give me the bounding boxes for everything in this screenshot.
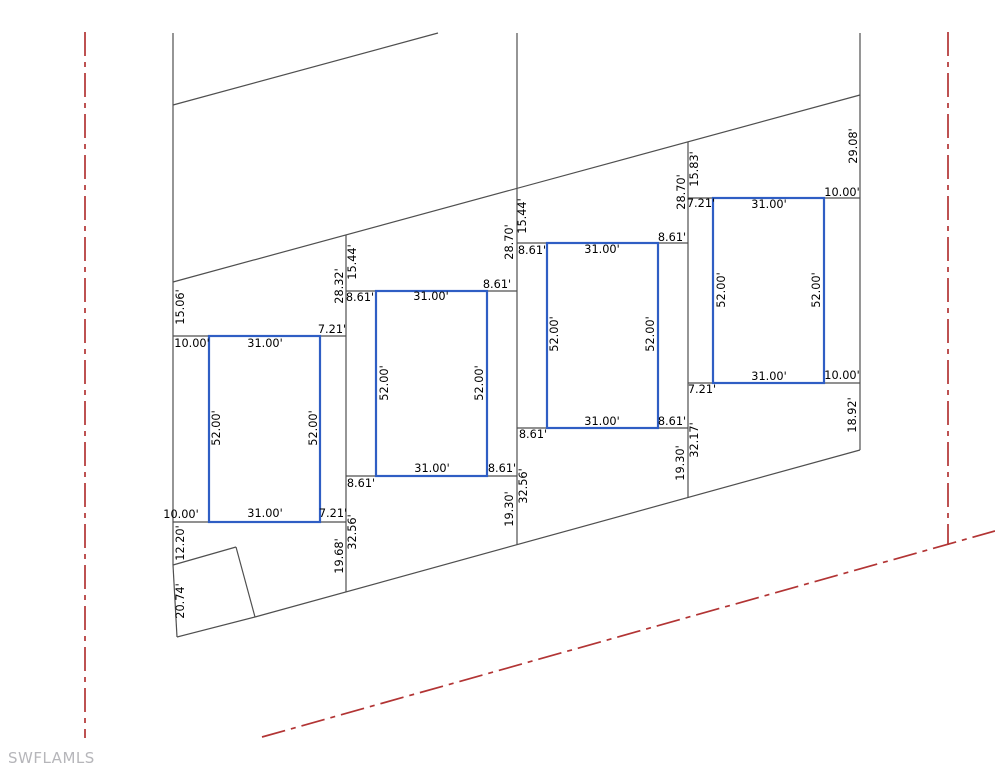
dimension-label: 10.00' [824,186,859,199]
dimension-label: 8.61' [346,291,374,304]
dimension-label: 52.00' [810,272,823,307]
dimension-label: 19.30' [503,491,516,526]
building-footprint-lot2 [376,291,487,476]
dimension-label: 8.61' [347,477,375,490]
dimension-label: 28.70' [503,224,516,259]
dimension-label: 52.00' [644,316,657,351]
dimension-label: 52.00' [715,272,728,307]
dimension-label: 10.00' [174,337,209,350]
dimension-label: 15.83' [688,151,701,186]
watermark: SWFLAMLS [8,749,95,767]
dimension-label: 32.56' [517,468,530,503]
dimension-label: 20.74' [174,583,187,618]
survey-plat-canvas: 10.00'31.00'7.21'10.00'31.00'7.21'52.00'… [0,0,995,768]
south-road-centerline [262,531,995,737]
dimension-label: 15.06' [174,289,187,324]
dimension-label: 7.21' [318,323,346,336]
dimension-label: 32.56' [346,514,359,549]
dimension-label: 12.20' [174,525,187,560]
dimension-label: 15.44' [516,198,529,233]
dimension-label: 29.08' [847,128,860,163]
dimension-label: 31.00' [584,415,619,428]
corner-parcel-edge-east [236,547,255,617]
building-footprint-lot3 [547,243,658,428]
dimension-label: 19.30' [674,445,687,480]
dimension-label: 28.32' [333,268,346,303]
dimension-label: 31.00' [247,337,282,350]
dimension-label: 10.00' [163,508,198,521]
dimension-label: 31.00' [247,507,282,520]
dimension-label: 32.17' [688,422,701,457]
dimension-label: 52.00' [473,365,486,400]
dimension-label: 8.61' [518,244,546,257]
dimension-label: 8.61' [519,428,547,441]
dimension-label: 52.00' [378,365,391,400]
dimension-label: 8.61' [488,462,516,475]
dimension-label: 19.68' [333,538,346,573]
north-diagonal-upper [173,33,438,105]
southwest-corner-edge [177,617,255,637]
dimension-label: 15.44' [346,244,359,279]
dimension-label: 7.21' [688,383,716,396]
building-footprint-lot1 [209,336,320,522]
dimension-label: 8.61' [483,278,511,291]
dimension-label: 31.00' [413,290,448,303]
dimension-label: 10.00' [824,369,859,382]
dimension-label: 52.00' [548,316,561,351]
dimension-label: 52.00' [307,410,320,445]
dimension-label: 8.61' [658,231,686,244]
dimension-label: 31.00' [414,462,449,475]
building-footprint-lot4 [713,198,824,383]
dimension-label: 31.00' [751,198,786,211]
dimension-label: 31.00' [751,370,786,383]
dimension-label: 7.21' [319,507,347,520]
dimension-label: 7.21' [687,197,715,210]
dimension-label: 31.00' [584,243,619,256]
dimension-label: 18.92' [846,397,859,432]
plat-drawing: 10.00'31.00'7.21'10.00'31.00'7.21'52.00'… [0,0,995,768]
dimension-label: 52.00' [210,410,223,445]
dimension-label: 8.61' [658,415,686,428]
